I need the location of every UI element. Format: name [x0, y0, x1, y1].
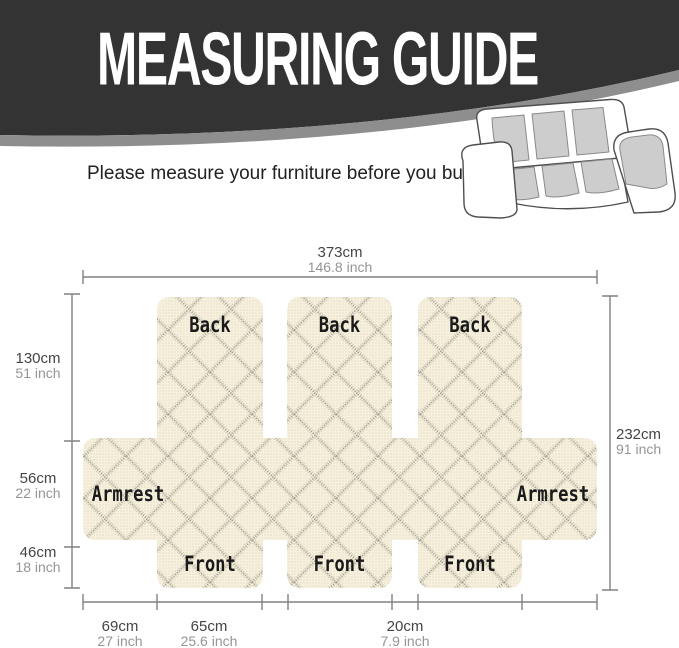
sofa-illustration-icon	[450, 98, 679, 222]
dim-cm-value: 69cm	[78, 620, 162, 634]
panel-label-front-3: Front	[427, 552, 512, 576]
sofa-cover-diagram	[0, 225, 679, 648]
dim-cm-value: 373cm	[240, 246, 440, 260]
dim-inch-value: 18 inch	[4, 560, 72, 574]
dim-cm-value: 20cm	[363, 620, 447, 634]
measuring-guide-infographic: MEASURING GUIDE Please measure your furn…	[0, 0, 679, 648]
panel-label-back-1: Back	[167, 313, 254, 337]
panel-label-front-1: Front	[167, 552, 254, 576]
dim-back-height: 130cm 51 inch	[4, 352, 72, 380]
dim-cm-value: 46cm	[4, 546, 72, 560]
dim-armrest-height: 56cm 22 inch	[4, 472, 72, 500]
dim-inch-value: 91 inch	[616, 442, 679, 456]
dim-inch-value: 146.8 inch	[240, 260, 440, 274]
dim-seat-width: 65cm 25.6 inch	[167, 620, 251, 648]
panel-label-armrest-right: Armrest	[505, 482, 600, 506]
panel-label-armrest-left: Armrest	[80, 482, 175, 506]
dim-cm-value: 130cm	[4, 352, 72, 366]
dim-inch-value: 27 inch	[78, 634, 162, 648]
dim-inch-value: 25.6 inch	[167, 634, 251, 648]
dim-cm-value: 56cm	[4, 472, 72, 486]
dim-cm-value: 65cm	[167, 620, 251, 634]
panel-label-front-2: Front	[296, 552, 382, 576]
dim-total-width: 373cm 146.8 inch	[240, 246, 440, 274]
panel-label-back-2: Back	[296, 313, 382, 337]
dim-inch-value: 7.9 inch	[363, 634, 447, 648]
dim-inch-value: 51 inch	[4, 366, 72, 380]
page-title: MEASURING GUIDE	[90, 22, 545, 97]
dim-gap-width: 20cm 7.9 inch	[363, 620, 447, 648]
dim-armrest-width: 69cm 27 inch	[78, 620, 162, 648]
dim-inch-value: 22 inch	[4, 486, 72, 500]
panel-label-back-3: Back	[427, 313, 512, 337]
subtitle-text: Please measure your furniture before you…	[87, 163, 476, 185]
dim-total-depth: 232cm 91 inch	[616, 428, 679, 456]
dim-front-height: 46cm 18 inch	[4, 546, 72, 574]
dim-cm-value: 232cm	[616, 428, 679, 442]
